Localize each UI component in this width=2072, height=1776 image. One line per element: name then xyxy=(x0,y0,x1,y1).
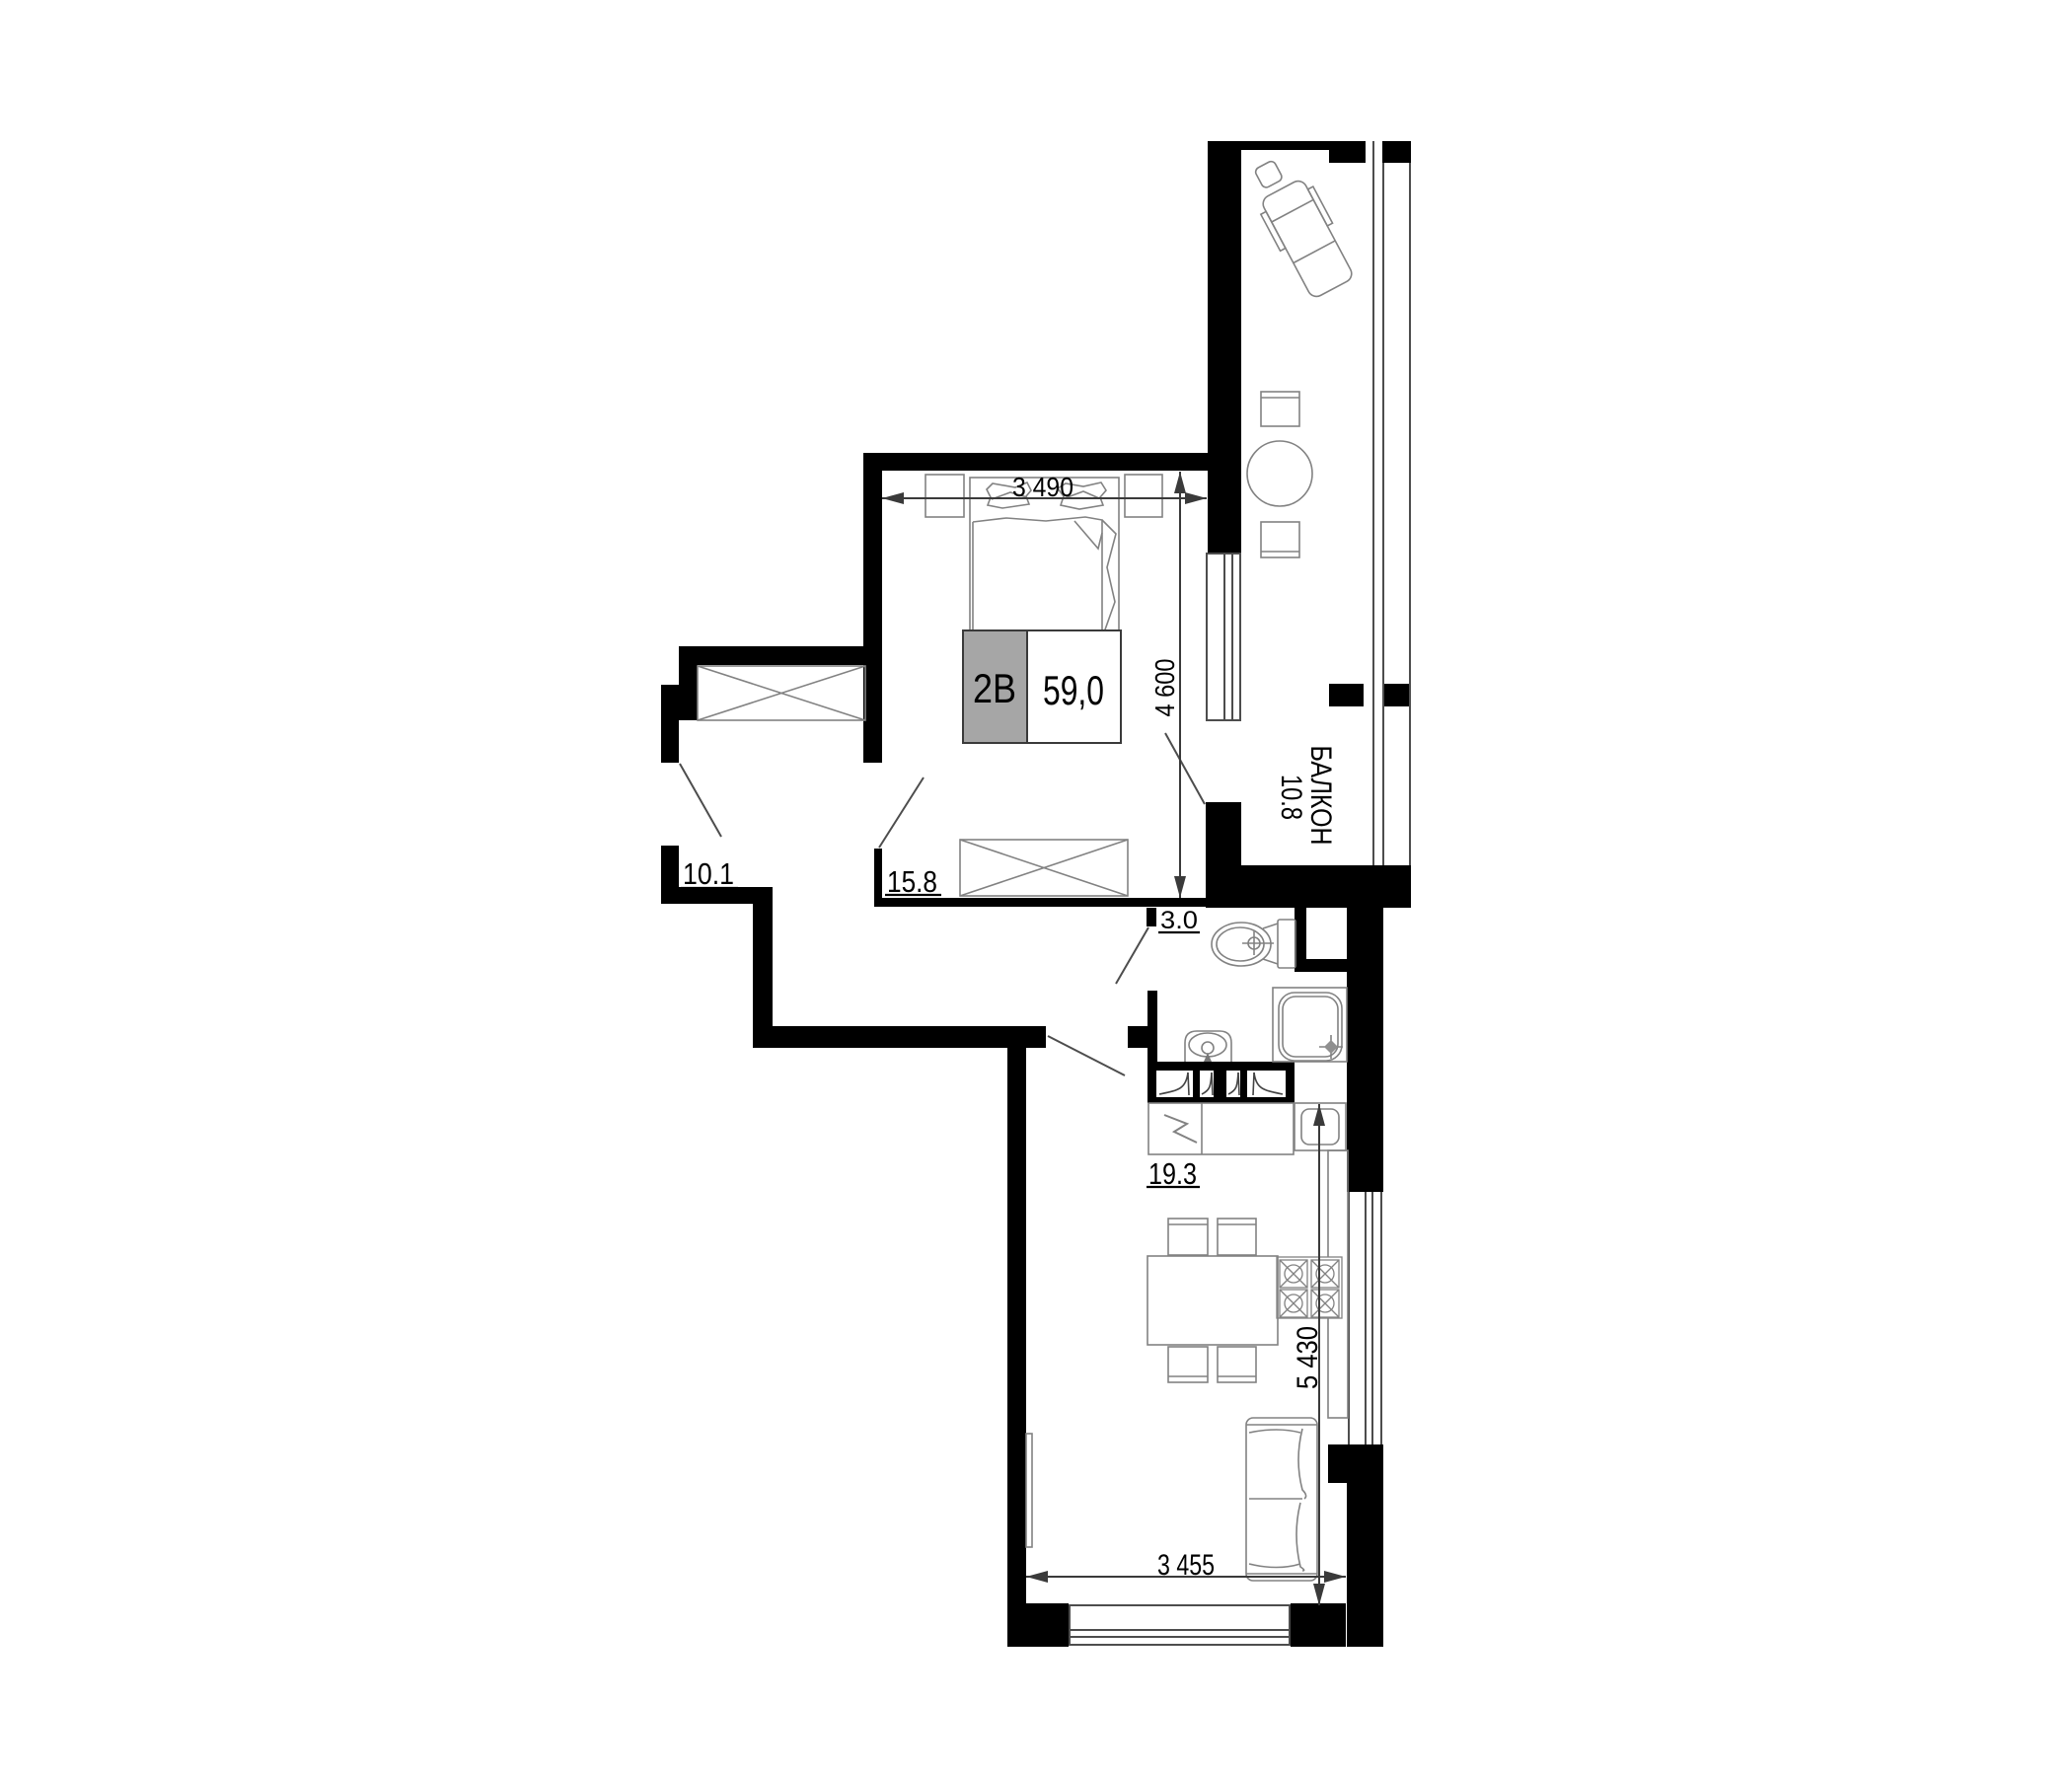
svg-text:19.3: 19.3 xyxy=(1148,1156,1197,1191)
svg-text:59,0: 59,0 xyxy=(1043,667,1104,713)
svg-text:БАЛКОН: БАЛКОН xyxy=(1304,746,1337,846)
svg-text:15.8: 15.8 xyxy=(887,864,937,899)
svg-text:3 490: 3 490 xyxy=(1012,472,1073,502)
svg-text:3.0: 3.0 xyxy=(1160,907,1198,934)
svg-text:4 600: 4 600 xyxy=(1149,659,1180,717)
svg-text:10.1: 10.1 xyxy=(683,856,734,891)
svg-text:3 455: 3 455 xyxy=(1157,1549,1215,1582)
svg-text:2В: 2В xyxy=(973,665,1016,711)
svg-text:10.8: 10.8 xyxy=(1275,775,1307,820)
svg-text:5 430: 5 430 xyxy=(1292,1326,1324,1389)
